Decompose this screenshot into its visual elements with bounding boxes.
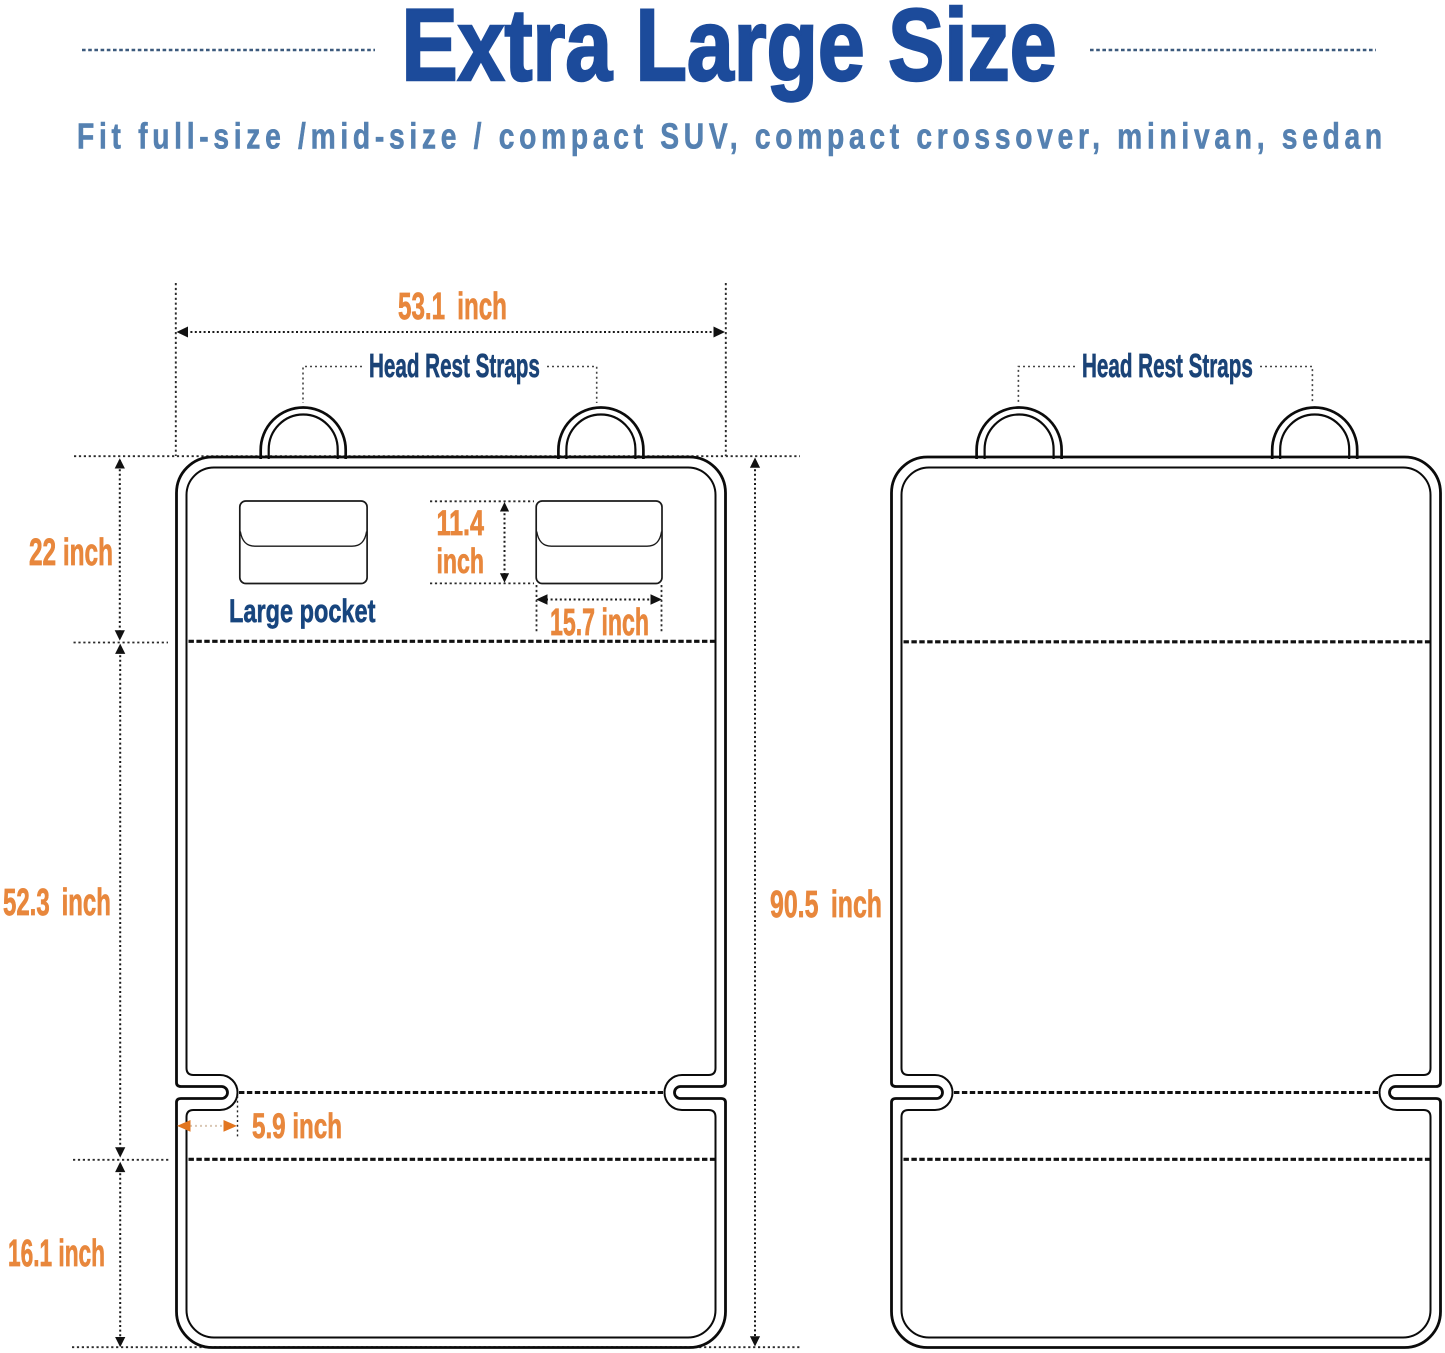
svg-text:Large pocket: Large pocket xyxy=(229,593,376,630)
svg-text:22 inch: 22 inch xyxy=(29,530,113,573)
svg-text:inch: inch xyxy=(437,542,484,581)
svg-text:Extra Large Size: Extra Large Size xyxy=(402,0,1057,102)
svg-text:Fit full-size /mid-size / comp: Fit full-size /mid-size / compact SUV, c… xyxy=(77,116,1387,156)
svg-text:52.3 inch: 52.3 inch xyxy=(3,880,111,923)
svg-text:Head Rest Straps: Head Rest Straps xyxy=(369,347,540,384)
svg-text:11.4: 11.4 xyxy=(437,504,484,543)
svg-text:Head Rest Straps: Head Rest Straps xyxy=(1082,347,1253,384)
svg-text:90.5 inch: 90.5 inch xyxy=(770,883,882,926)
svg-text:15.7 inch: 15.7 inch xyxy=(550,601,649,643)
svg-text:53.1 inch: 53.1 inch xyxy=(398,284,507,327)
svg-text:5.9 inch: 5.9 inch xyxy=(252,1108,342,1146)
svg-text:16.1 inch: 16.1 inch xyxy=(8,1232,105,1275)
